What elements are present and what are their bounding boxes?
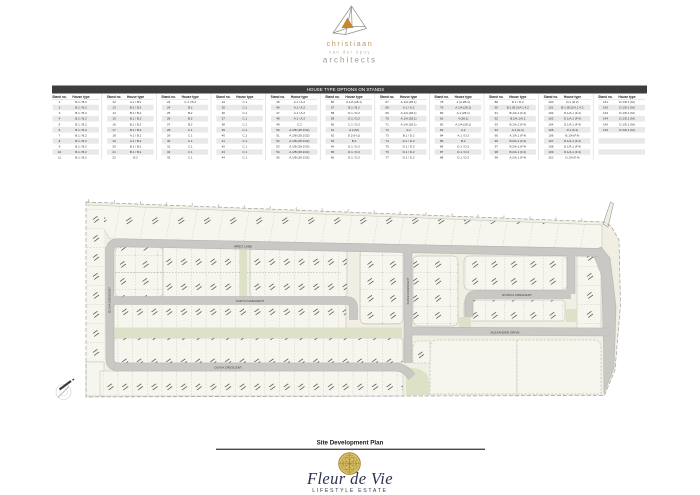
svg-text:Fleur de Vie: Fleur de Vie [306, 469, 393, 488]
svg-text:LIFESTYLE ESTATE: LIFESTYLE ESTATE [312, 488, 387, 494]
